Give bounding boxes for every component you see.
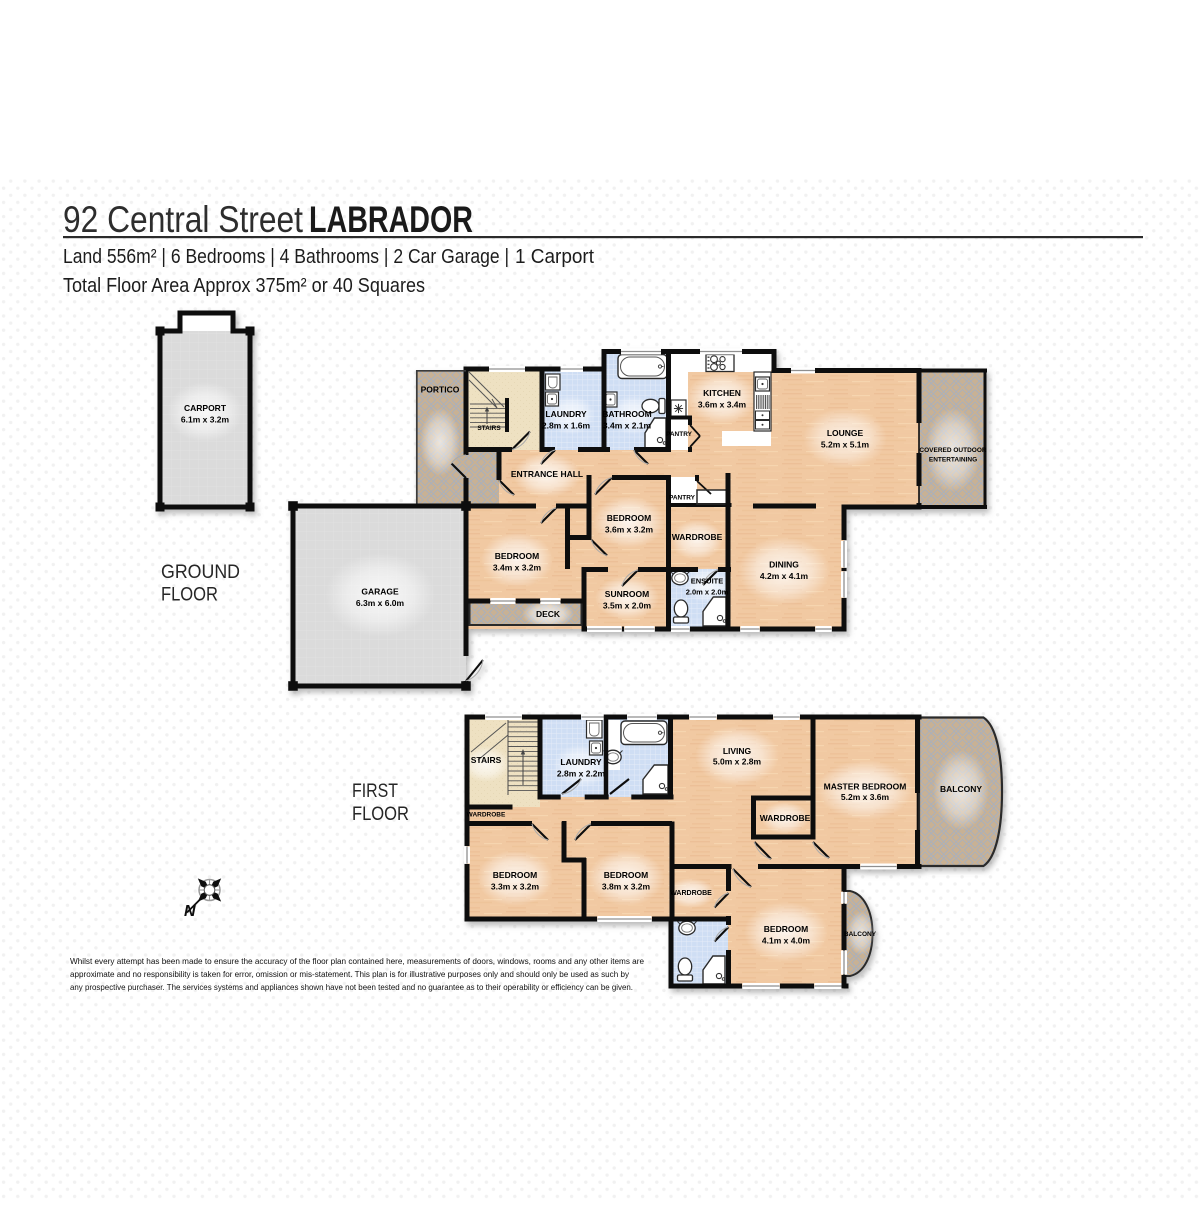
svg-text:6.3m x 6.0m: 6.3m x 6.0m [356,598,405,608]
svg-text:4.2m x 4.1m: 4.2m x 4.1m [760,571,809,581]
svg-text:3.6m x 3.2m: 3.6m x 3.2m [605,525,654,535]
svg-text:SUNROOM: SUNROOM [605,589,649,599]
svg-text:LAUNDRY: LAUNDRY [560,757,602,767]
svg-text:CARPORT: CARPORT [184,403,227,413]
svg-text:approximate and no responsibil: approximate and no responsibility is tak… [70,969,630,979]
svg-text:BEDROOM: BEDROOM [495,551,539,561]
svg-text:WARDROBE: WARDROBE [467,812,506,819]
svg-text:3.3m x 3.2m: 3.3m x 3.2m [491,882,540,892]
svg-text:ENTRANCE HALL: ENTRANCE HALL [511,469,583,479]
svg-text:KITCHEN: KITCHEN [703,388,741,398]
svg-text:92 Central Street: 92 Central Street [63,199,304,240]
svg-text:MASTER BEDROOM: MASTER BEDROOM [824,782,907,792]
svg-text:BEDROOM: BEDROOM [604,870,648,880]
svg-text:ENTERTAINING: ENTERTAINING [929,457,977,464]
svg-text:WARDROBE: WARDROBE [670,890,712,897]
svg-text:Land 556m² | 6 Bedrooms | 4 Ba: Land 556m² | 6 Bedrooms | 4 Bathrooms | … [63,246,509,268]
svg-text:FLOOR: FLOOR [352,804,409,825]
svg-text:5.2m x 3.6m: 5.2m x 3.6m [841,792,890,802]
svg-text:Total Floor Area Approx 375m²: Total Floor Area Approx 375m² or 40 Squa… [63,275,425,297]
svg-text:3.4m x 3.2m: 3.4m x 3.2m [493,563,542,573]
svg-text:3.4m x 2.1m: 3.4m x 2.1m [603,421,652,431]
svg-text:5.0m x 2.8m: 5.0m x 2.8m [713,757,762,767]
svg-text:PANTRY: PANTRY [666,431,693,438]
svg-text:BEDROOM: BEDROOM [764,924,808,934]
svg-text:N: N [184,903,196,920]
svg-text:3.8m x 3.2m: 3.8m x 3.2m [602,882,651,892]
svg-text:2.8m x 1.6m: 2.8m x 1.6m [542,421,591,431]
svg-text:1 Carport: 1 Carport [515,246,594,268]
svg-text:FIRST: FIRST [352,781,398,802]
svg-text:Whilst every attempt has been: Whilst every attempt has been made to en… [70,956,644,966]
svg-text:LOUNGE: LOUNGE [827,428,864,438]
svg-text:PORTICO: PORTICO [421,385,460,395]
svg-text:4.1m x 4.0m: 4.1m x 4.0m [762,936,811,946]
svg-text:BALCONY: BALCONY [844,931,877,938]
svg-text:FLOOR: FLOOR [161,585,218,606]
svg-text:LABRADOR: LABRADOR [309,199,473,240]
svg-text:2.0m x 2.0m: 2.0m x 2.0m [686,588,729,597]
svg-text:BALCONY: BALCONY [940,784,982,794]
svg-text:GROUND: GROUND [161,562,240,583]
svg-text:STAIRS: STAIRS [471,755,502,765]
svg-text:BEDROOM: BEDROOM [493,870,537,880]
svg-text:COVERED OUTDOOR: COVERED OUTDOOR [919,447,986,454]
svg-text:DECK: DECK [536,609,561,619]
svg-text:WARDROBE: WARDROBE [672,532,723,542]
svg-text:WARDROBE: WARDROBE [760,813,811,823]
svg-text:3.5m x 2.0m: 3.5m x 2.0m [603,601,652,611]
svg-text:6.1m x 3.2m: 6.1m x 3.2m [181,415,230,425]
svg-text:STAIRS: STAIRS [477,425,501,432]
svg-text:ENSUITE: ENSUITE [691,577,724,586]
svg-text:DINING: DINING [769,560,799,570]
svg-text:BEDROOM: BEDROOM [607,513,651,523]
svg-text:any prospective purchaser. The: any prospective purchaser. The services … [70,982,633,992]
svg-text:PANTRY: PANTRY [669,495,696,502]
svg-text:BATHROOM: BATHROOM [602,409,651,419]
svg-text:LAUNDRY: LAUNDRY [545,409,587,419]
svg-text:3.6m x 3.4m: 3.6m x 3.4m [698,400,747,410]
svg-text:5.2m x 5.1m: 5.2m x 5.1m [821,440,870,450]
svg-text:2.8m x 2.2m: 2.8m x 2.2m [557,769,606,779]
svg-text:GARAGE: GARAGE [361,587,399,597]
svg-text:LIVING: LIVING [723,746,752,756]
